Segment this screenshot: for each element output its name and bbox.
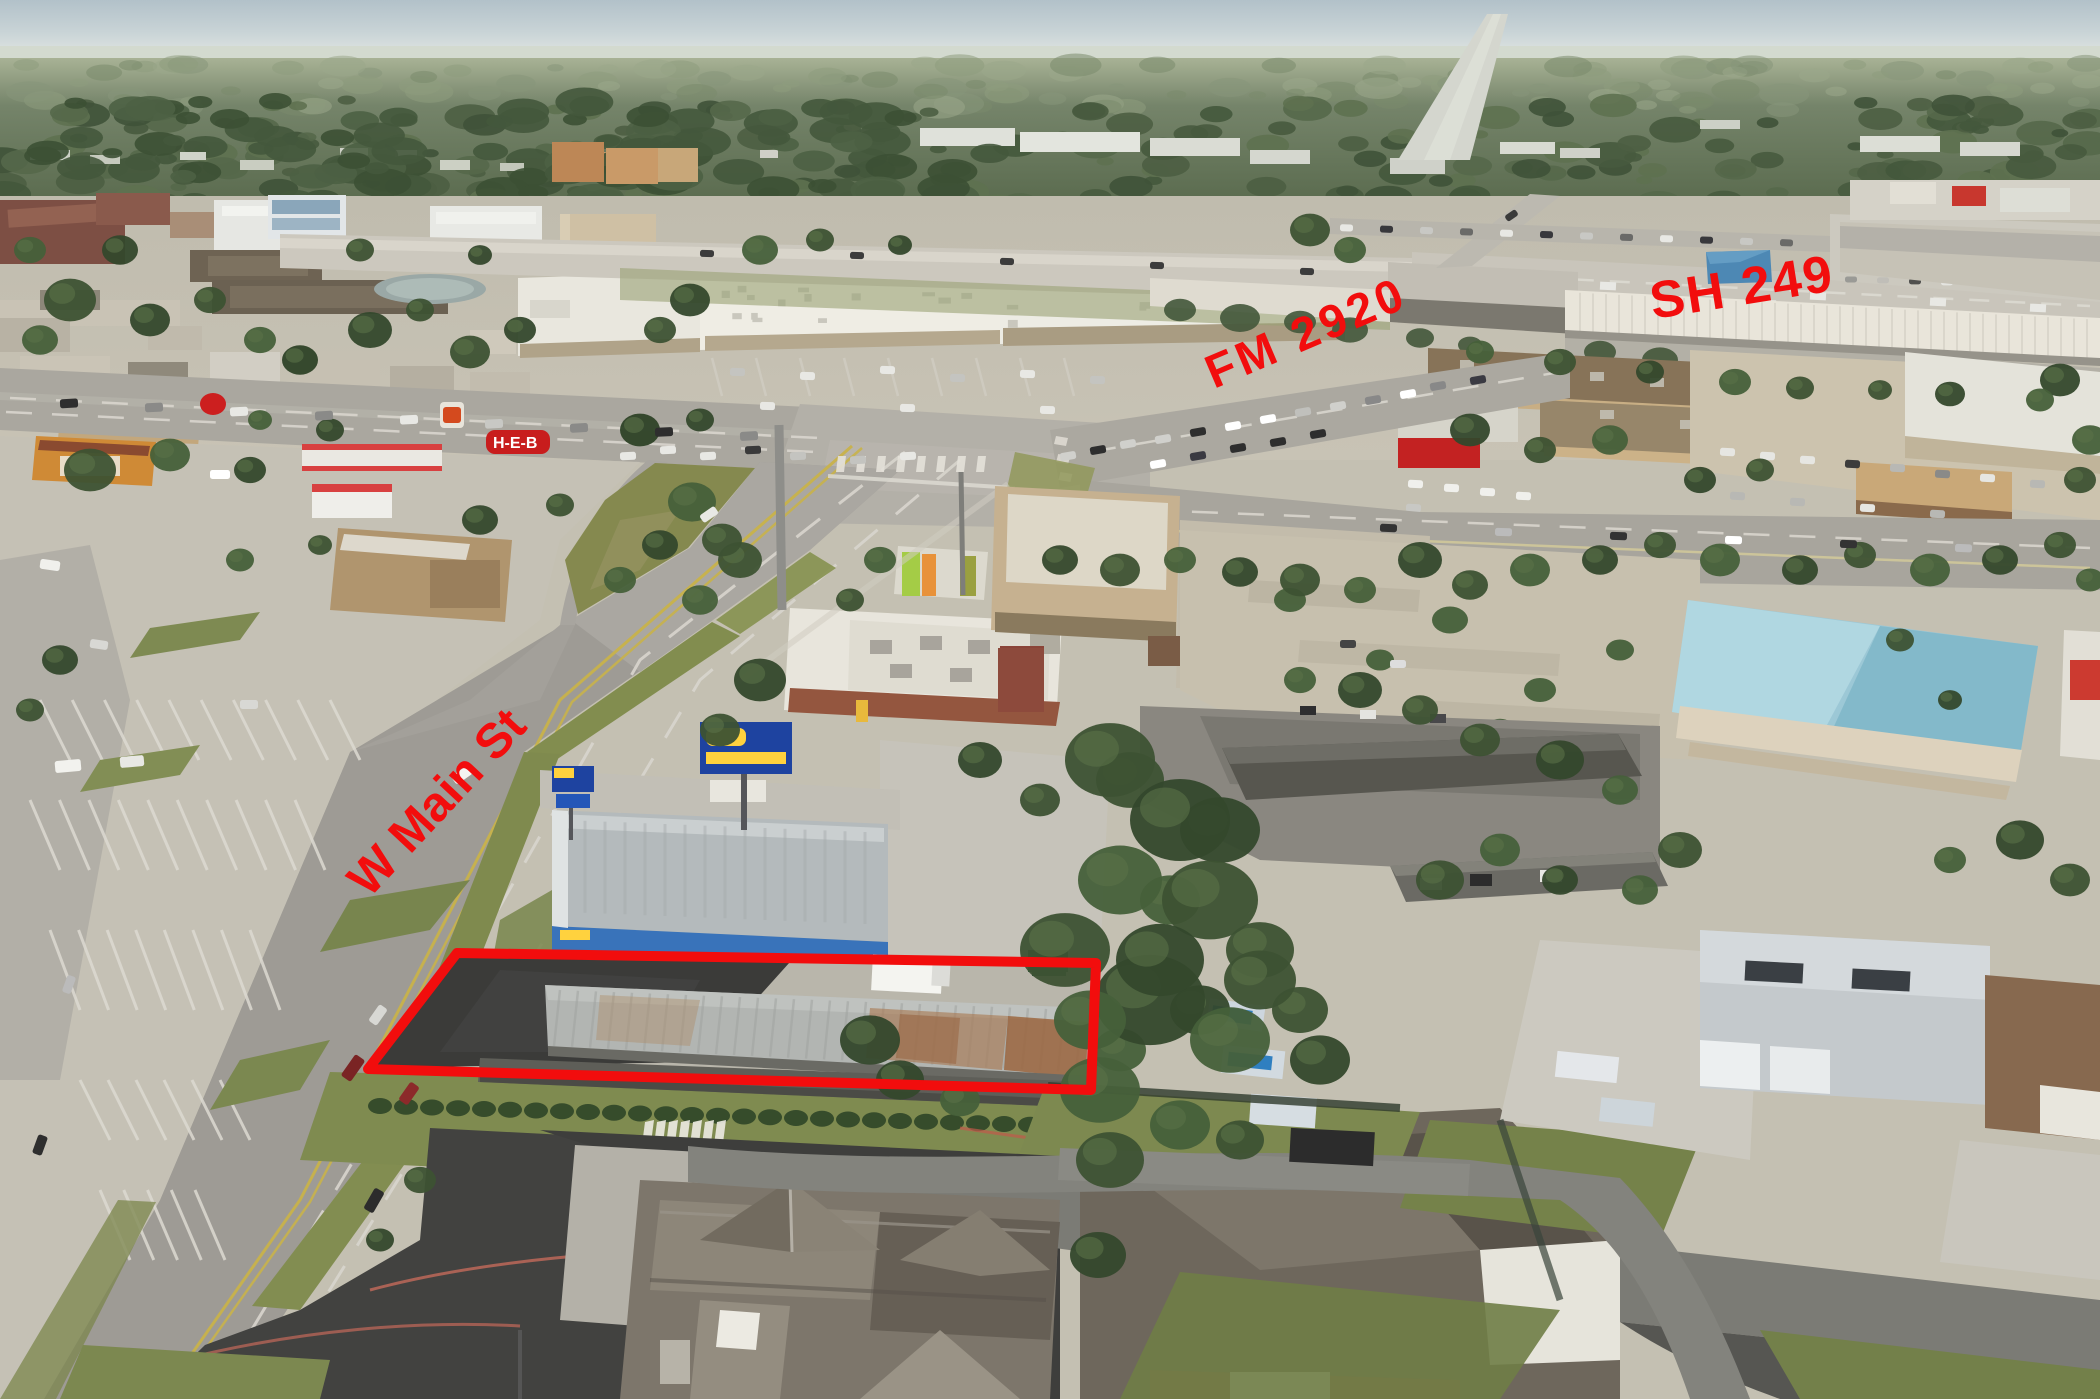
- svg-text:H-E-B: H-E-B: [493, 435, 537, 452]
